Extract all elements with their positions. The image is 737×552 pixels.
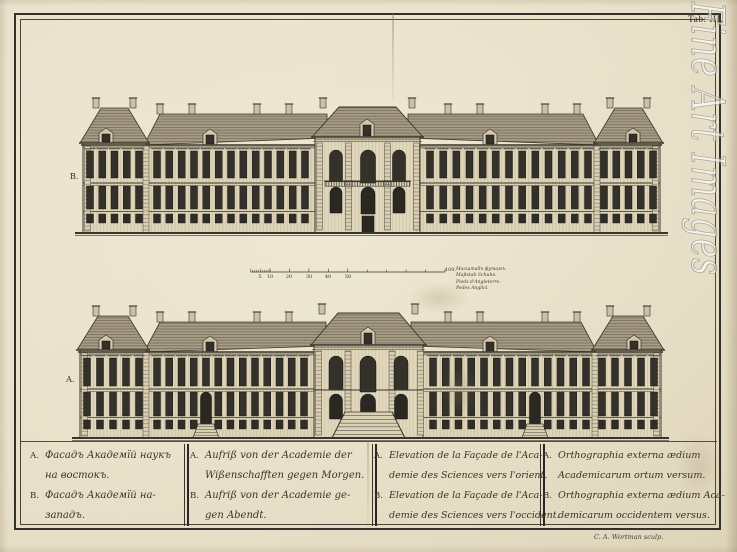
caption-text: Фасадъ Академїй на- xyxy=(45,490,156,501)
caption-text: Wißenschafften gegen Morgen. xyxy=(205,470,364,481)
caption-text: Фасадъ Академїй наукъ xyxy=(45,450,171,461)
scale-tick-label: 5 xyxy=(255,274,265,280)
caption-line: demie des Sciences vers l'occident. xyxy=(374,506,560,526)
caption-text: gen Abendt. xyxy=(205,510,267,521)
scale-end-label: 100. xyxy=(445,267,456,273)
caption-line: A.Elevation de la Façade de l'Aca- xyxy=(374,446,560,466)
scale-tick-label: 10 xyxy=(265,274,275,280)
caption-line: западъ. xyxy=(30,506,171,526)
figure-label-top: В. xyxy=(70,172,78,181)
caption-line: A.Aufriß von der Academie der xyxy=(190,446,364,466)
caption-text: Aufriß von der Academie ge- xyxy=(205,490,350,501)
caption-divider xyxy=(184,444,189,526)
caption-column-french: A.Elevation de la Façade de l'Aca- demie… xyxy=(374,446,560,526)
caption-line: B.Aufriß von der Academie ge- xyxy=(190,486,364,506)
caption-letter: A. xyxy=(190,446,205,466)
caption-letter: B. xyxy=(190,486,205,506)
caption-line: gen Abendt. xyxy=(190,506,364,526)
caption-text: demicarum occidentem versus. xyxy=(558,510,710,521)
caption-text: demie des Sciences vers l'orient. xyxy=(389,470,547,481)
caption-line: В.Фасадъ Академїй на- xyxy=(30,486,171,506)
figure-label-bottom: А. xyxy=(66,375,75,384)
figure-bottom-east-elevation xyxy=(72,304,669,440)
paper-stain xyxy=(408,282,470,314)
caption-text: западъ. xyxy=(45,510,85,521)
paper-crease xyxy=(392,14,394,100)
caption-letter: B. xyxy=(543,486,558,506)
caption-text: Elevation de la Façade de l'Aca- xyxy=(389,450,543,461)
caption-line: Wißenschafften gegen Morgen. xyxy=(190,466,364,486)
caption-text: на востокъ. xyxy=(45,470,110,481)
paper-crease xyxy=(367,440,369,530)
engraver-credit: C. A. Wortman sculp. xyxy=(594,533,663,541)
caption-text: Aufriß von der Academie der xyxy=(205,450,352,461)
caption-line: demicarum occidentem versus. xyxy=(543,506,725,526)
caption-line: B.Elevation de la Façade de l'Aca- xyxy=(374,486,560,506)
paper-stain xyxy=(440,368,480,414)
caption-line: на востокъ. xyxy=(30,466,171,486)
scale-tick-label: 40 xyxy=(323,274,333,280)
caption-line: demie des Sciences vers l'orient. xyxy=(374,466,560,486)
caption-column-russian: А.Фасадъ Академїй наукъ на востокъ. В.Фа… xyxy=(30,446,171,526)
caption-text: Elevation de la Façade de l'Aca- xyxy=(389,490,543,501)
engraving-plate-scan: Tab. III. В. А. 5 10 20 30 40 xyxy=(0,0,737,552)
scale-tick-label: 20 xyxy=(284,274,294,280)
scale-bar-graphic xyxy=(251,269,445,272)
paper-edge-shading xyxy=(725,0,737,552)
caption-letter: В. xyxy=(30,486,45,506)
caption-column-german: A.Aufriß von der Academie der Wißenschaf… xyxy=(190,446,364,526)
scale-tick-label: 30 xyxy=(304,274,314,280)
paper-stain xyxy=(676,430,722,500)
caption-letter: B. xyxy=(374,486,389,506)
figure-top-west-elevation xyxy=(75,98,668,235)
caption-text: demie des Sciences vers l'occident. xyxy=(389,510,560,521)
caption-letter: A. xyxy=(374,446,389,466)
caption-letter: А. xyxy=(30,446,45,466)
caption-line: А.Фасадъ Академїй наукъ xyxy=(30,446,171,466)
scale-tick-label: 50 xyxy=(343,274,353,280)
caption-letter: A. xyxy=(543,446,558,466)
